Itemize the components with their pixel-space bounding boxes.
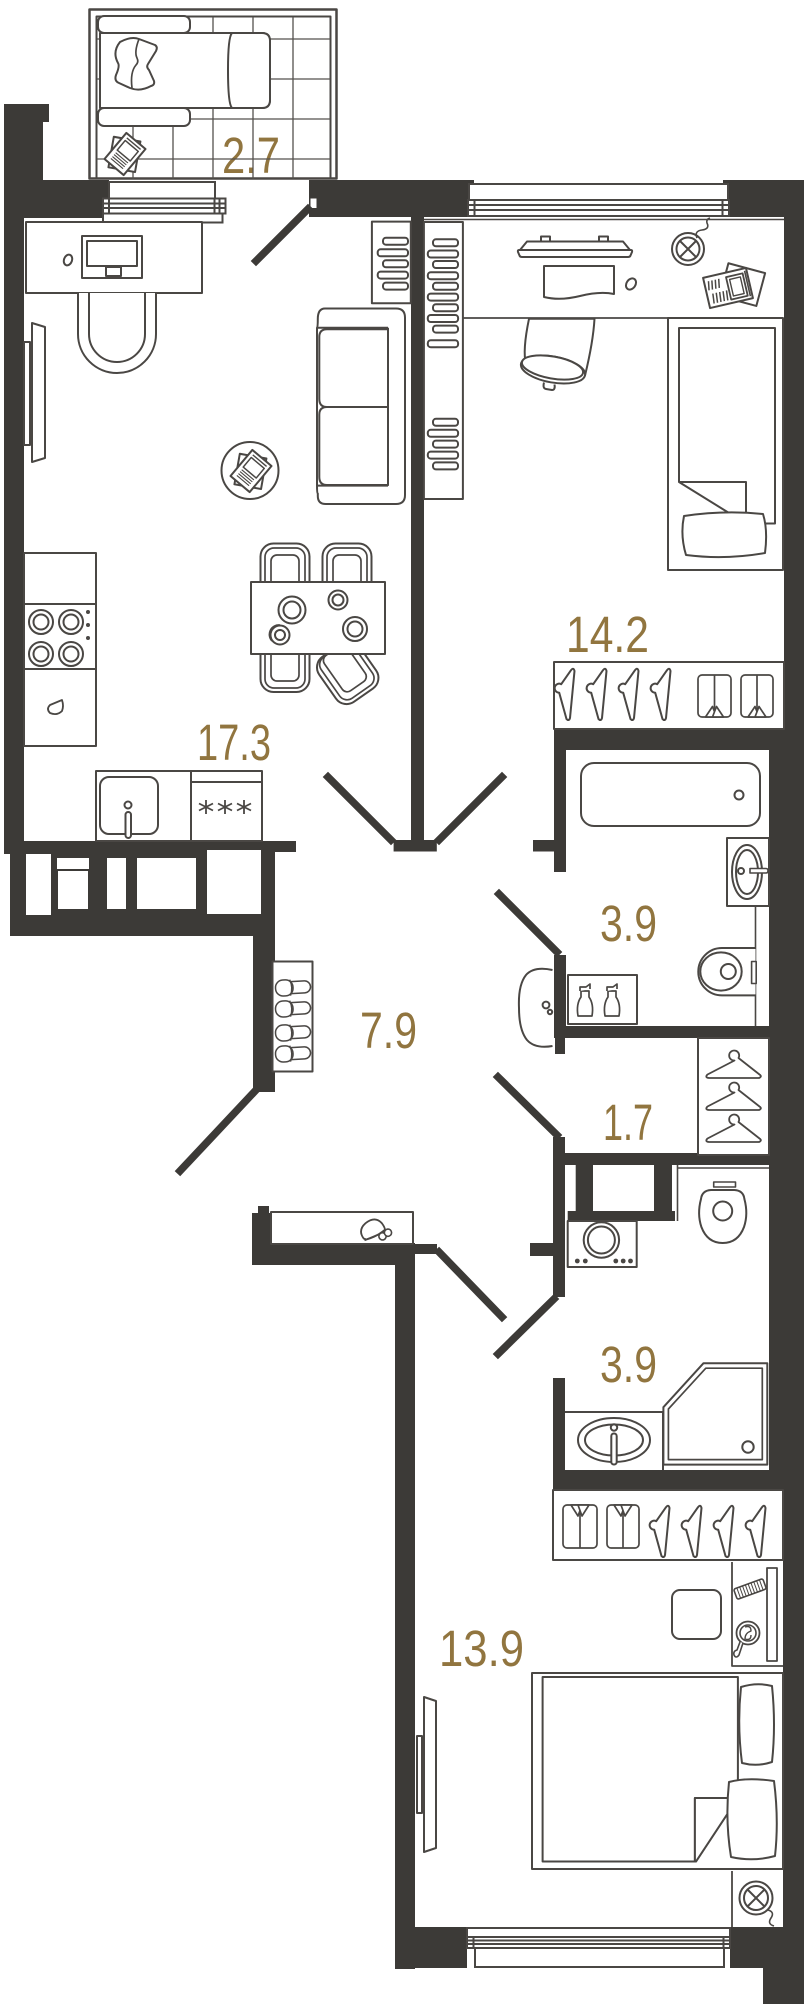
svg-text:3.9: 3.9	[600, 895, 657, 952]
svg-text:1.7: 1.7	[603, 1094, 653, 1151]
svg-text:7.9: 7.9	[360, 1002, 417, 1059]
svg-text:14.2: 14.2	[566, 606, 649, 663]
svg-text:13.9: 13.9	[439, 1620, 524, 1677]
svg-text:17.3: 17.3	[197, 714, 271, 771]
svg-text:2.7: 2.7	[222, 127, 280, 184]
svg-text:3.9: 3.9	[600, 1336, 657, 1393]
